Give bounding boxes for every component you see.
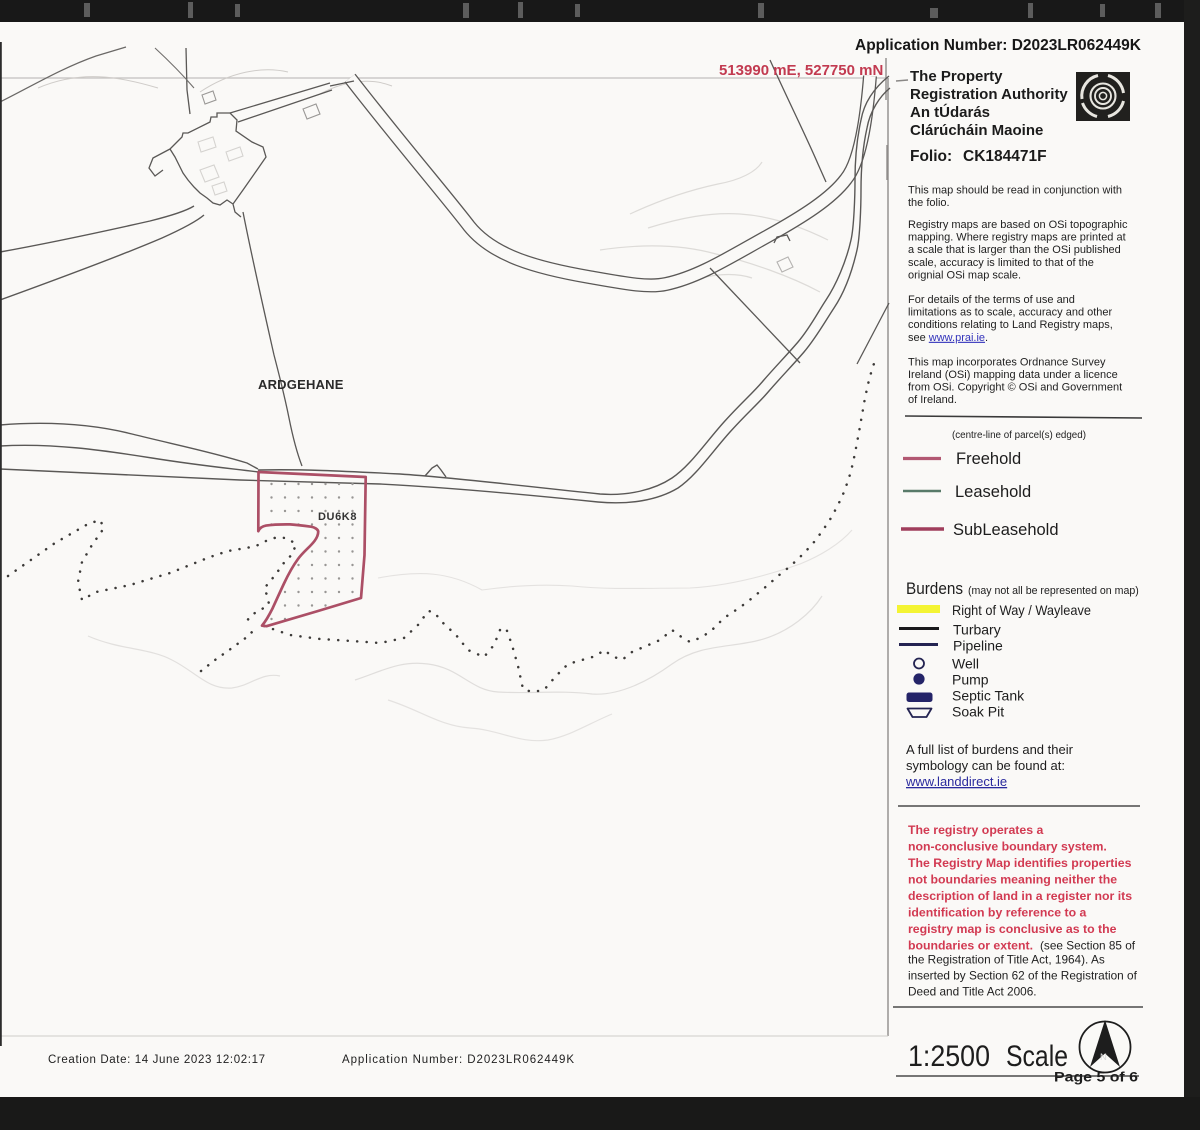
- svg-text:Scale: Scale: [1006, 1040, 1068, 1073]
- svg-text:Right of Way / Wayleave: Right of Way / Wayleave: [952, 602, 1091, 618]
- svg-text:Septic Tank: Septic Tank: [952, 688, 1025, 704]
- svg-text:Burdens: Burdens: [906, 580, 963, 598]
- svg-text:Creation Date: 14 June 2023: Creation Date: 14 June 2023 12:02:17: [48, 1054, 265, 1066]
- svg-text:(centre-line of parcel(s) edge: (centre-line of parcel(s) edged): [952, 430, 1086, 441]
- svg-text:Pump: Pump: [952, 672, 989, 688]
- svg-text:DU6K8: DU6K8: [318, 511, 357, 523]
- svg-text:Leasehold: Leasehold: [955, 483, 1031, 501]
- svg-text:Application Number: D2023LR0: Application Number: D2023LR062449K: [342, 1054, 574, 1066]
- svg-text:ARDGEHANE: ARDGEHANE: [258, 377, 344, 392]
- svg-text:Application Number: D2023LR062: Application Number: D2023LR062449K: [855, 37, 1142, 54]
- svg-text:1:2500: 1:2500: [908, 1040, 990, 1073]
- svg-text:Turbary: Turbary: [953, 622, 1001, 638]
- svg-text:SubLeasehold: SubLeasehold: [953, 521, 1059, 539]
- svg-text:513990 mE, 527750 mN: 513990 mE, 527750 mN: [719, 62, 883, 79]
- svg-text:Pipeline: Pipeline: [953, 638, 1003, 654]
- svg-text:Freehold: Freehold: [956, 450, 1021, 468]
- svg-text:Well: Well: [952, 656, 979, 672]
- svg-text:(may not all be represented on: (may not all be represented on map): [968, 585, 1139, 597]
- svg-text:CK184471F: CK184471F: [963, 148, 1047, 165]
- svg-text:Page 5 of 6: Page 5 of 6: [1054, 1070, 1139, 1085]
- svg-text:N: N: [1100, 1052, 1107, 1063]
- svg-text:Folio:: Folio:: [910, 148, 952, 165]
- svg-text:Soak Pit: Soak Pit: [952, 704, 1004, 720]
